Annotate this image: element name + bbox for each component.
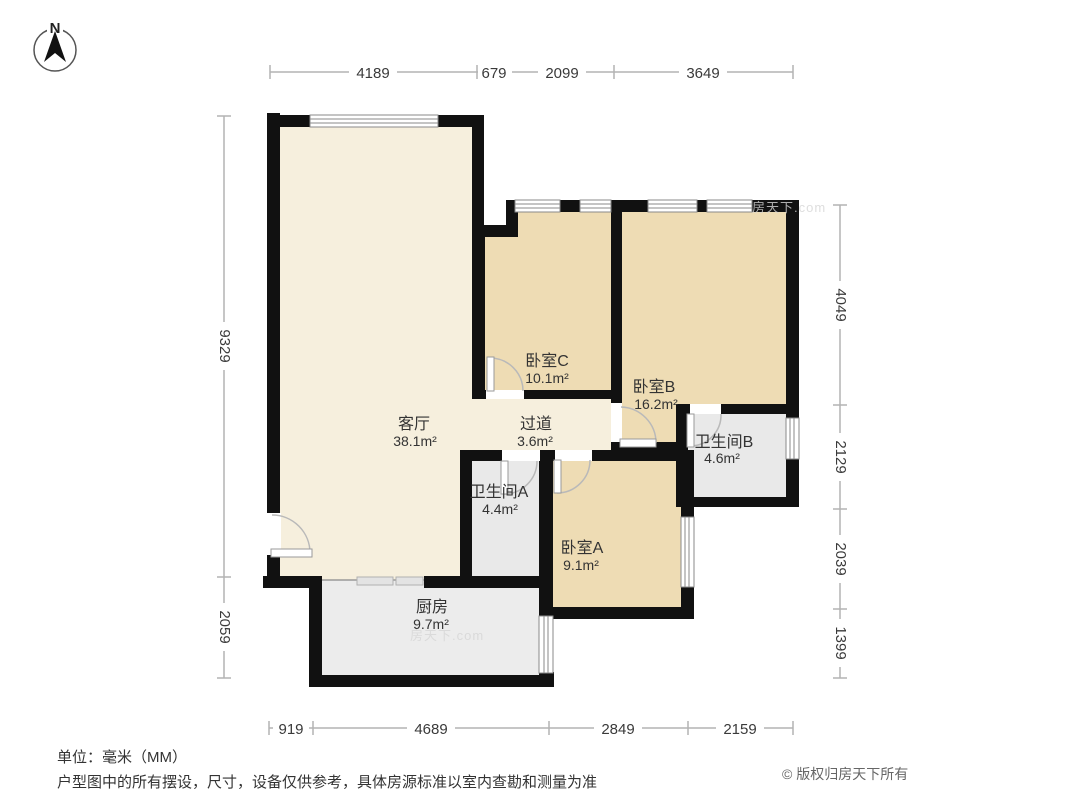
copyright-note: © 版权归房天下所有	[782, 766, 908, 782]
dim-label: 2849	[601, 721, 634, 738]
room-bedroom-a	[551, 459, 682, 608]
north-indicator: N	[34, 20, 76, 71]
window-icon	[648, 200, 697, 212]
dimension-left: 9329 2059	[215, 116, 233, 678]
room-label: 卫生间A	[470, 483, 529, 501]
floor-plan-svg: 房天下.com 房天下.com 客厅 38.1m² 过道 3.6m² 卧室C 1…	[0, 0, 1066, 800]
room-area: 38.1m²	[393, 433, 437, 449]
watermark-text: 房天下.com	[752, 200, 826, 215]
room-label: 卫生间B	[695, 433, 754, 451]
window-icon	[539, 616, 553, 673]
room-label: 厨房	[416, 598, 448, 616]
dim-label: 679	[481, 65, 506, 82]
room-area: 4.6m²	[704, 450, 740, 466]
dim-label: 4689	[414, 721, 447, 738]
room-label: 客厅	[398, 415, 430, 433]
window-icon	[786, 418, 799, 459]
dim-label: 1399	[832, 626, 849, 659]
dim-label: 4049	[832, 288, 849, 321]
dimension-top: 4189 679 2099 3649	[270, 63, 793, 82]
window-icon	[707, 200, 752, 212]
dim-label: 2159	[723, 721, 756, 738]
window-icon	[515, 200, 560, 212]
floor-plan-page: 房天下.com 房天下.com 客厅 38.1m² 过道 3.6m² 卧室C 1…	[0, 0, 1066, 800]
window-icon	[580, 200, 611, 212]
room-area: 9.7m²	[413, 616, 449, 632]
dim-label: 2129	[832, 440, 849, 473]
room-label: 卧室A	[561, 539, 604, 557]
footer: 单位：毫米（MM） 户型图中的所有摆设，尺寸，设备仅供参考，具体房源标准以室内查…	[57, 748, 908, 791]
dimension-bottom: 919 4689 2849 2159	[269, 719, 793, 738]
dimension-right: 4049 2129 2039 1399	[831, 205, 849, 678]
disclaimer-note: 户型图中的所有摆设，尺寸，设备仅供参考，具体房源标准以室内查勘和测量为准	[57, 774, 597, 791]
dim-label: 2099	[545, 65, 578, 82]
room-area: 3.6m²	[517, 433, 553, 449]
dim-label: 3649	[686, 65, 719, 82]
room-area: 4.4m²	[482, 501, 518, 517]
window-icon	[310, 115, 438, 127]
room-label: 卧室B	[633, 378, 676, 396]
dim-label: 919	[278, 721, 303, 738]
room-area: 16.2m²	[634, 396, 678, 412]
room-area: 9.1m²	[563, 557, 599, 573]
unit-note: 单位：毫米（MM）	[57, 748, 187, 766]
room-label: 过道	[520, 415, 552, 433]
counter-icon	[396, 577, 423, 585]
dim-label: 2039	[832, 542, 849, 575]
window-icon	[681, 517, 694, 587]
room-label: 卧室C	[525, 352, 569, 370]
dim-label: 9329	[216, 329, 233, 362]
dim-label: 4189	[356, 65, 389, 82]
counter-icon	[357, 577, 393, 585]
dim-label: 2059	[216, 610, 233, 643]
room-area: 10.1m²	[525, 370, 569, 386]
